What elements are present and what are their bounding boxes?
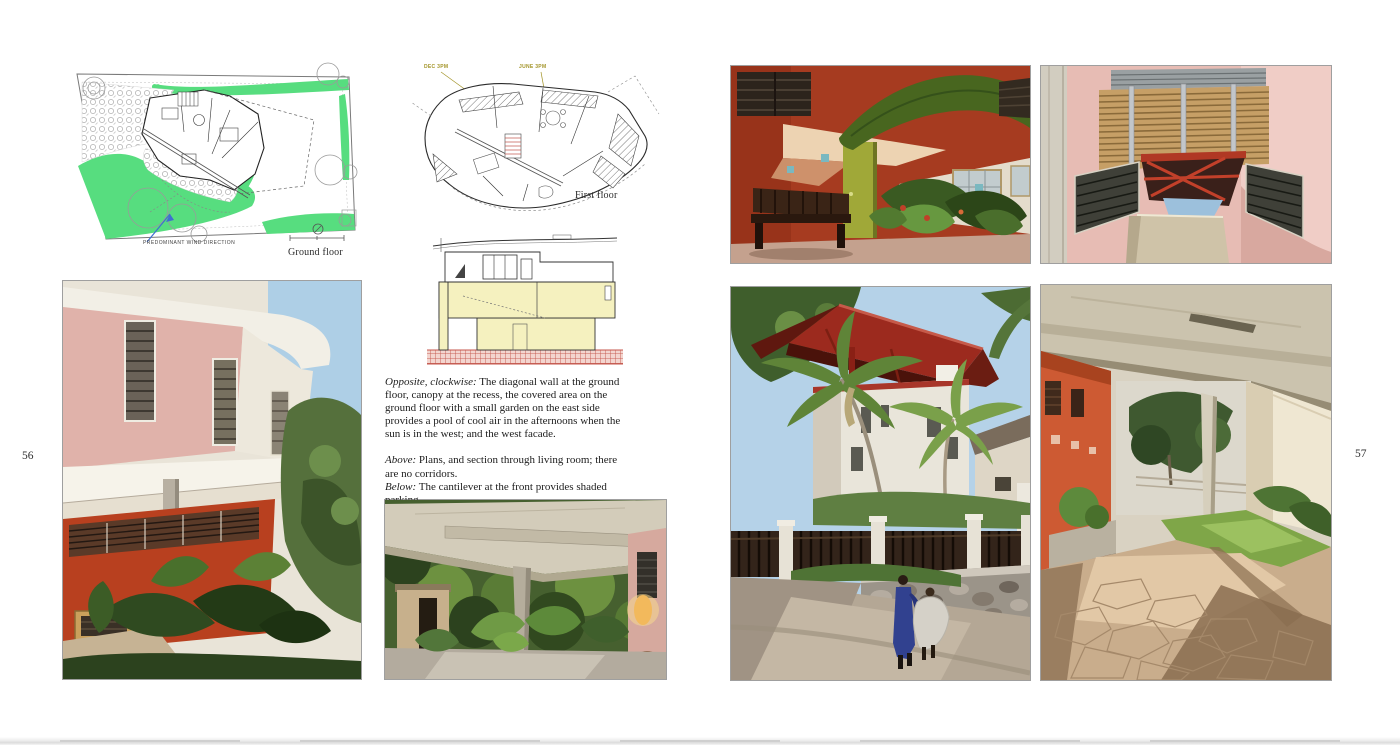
sun-angle-label-june: JUNE 3PM <box>519 64 546 70</box>
caption-opposite: Opposite, clockwise: The diagonal wall a… <box>385 376 631 441</box>
page-number-left: 56 <box>22 450 34 462</box>
section-ground-hatch <box>427 350 623 364</box>
caption-above-lead: Above: <box>385 454 416 466</box>
caption-above-text: Plans, and section through living room; … <box>385 454 617 479</box>
page-number-right: 57 <box>1355 448 1367 460</box>
right-page: 57 <box>700 0 1400 745</box>
first-floor-caption: First floor <box>575 190 617 201</box>
caption-below-lead: Below: <box>385 481 416 493</box>
page-edge-strip <box>0 737 1400 745</box>
stair <box>505 134 521 158</box>
caption-opposite-lead: Opposite, clockwise: <box>385 376 477 388</box>
ground-floor-plan: PREDOMINANT WIND DIRECTION <box>62 62 362 262</box>
book-spread: PREDOMINANT WIND DIRECTION Ground floor <box>0 0 1400 745</box>
photo-street-canopy <box>731 287 1030 680</box>
ground-floor-caption: Ground floor <box>288 247 343 258</box>
left-page: PREDOMINANT WIND DIRECTION Ground floor <box>0 0 700 745</box>
ground-floor-plan-drawing <box>62 62 362 262</box>
photo-covered-courtyard <box>1041 285 1331 680</box>
yellow-door <box>843 142 877 238</box>
caption-above: Above: Plans, and section through living… <box>385 454 631 480</box>
red-steel-structure <box>1141 151 1246 206</box>
photo-first-floor-recess <box>1041 66 1331 263</box>
first-floor-plan: DEC 3PM JUNE 3PM <box>393 56 668 224</box>
first-floor-plan-drawing <box>393 56 668 224</box>
photo-entry-canopy <box>731 66 1030 263</box>
section-drawing <box>425 228 625 368</box>
concrete-parapet <box>1129 214 1229 263</box>
photo-carport <box>385 500 666 679</box>
sun-angle-label-dec: DEC 3PM <box>424 64 448 70</box>
photo-west-facade <box>63 281 361 679</box>
wind-direction-label: PREDOMINANT WIND DIRECTION <box>143 240 235 246</box>
section-living-room <box>439 282 615 318</box>
